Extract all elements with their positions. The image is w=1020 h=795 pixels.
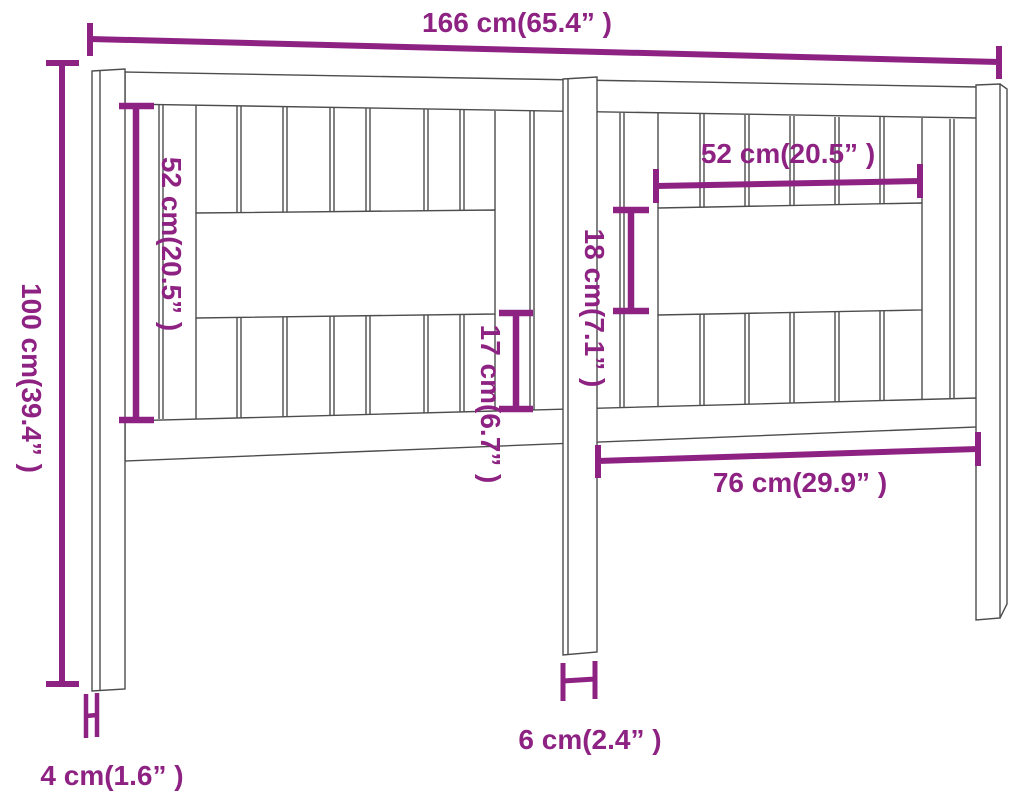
dimension-middle-post-width-label: 6 cm(2.4” )	[518, 724, 661, 755]
dimension-total-height: 100 cm(39.4” )	[16, 63, 79, 684]
headboard-dimension-diagram: 166 cm(65.4” ) 100 cm(39.4” ) 52 cm(20.5…	[0, 0, 1020, 795]
dimension-post-spacing: 76 cm(29.9” )	[598, 432, 978, 498]
dimension-opening-height: 18 cm(7.1” )	[579, 210, 649, 387]
dimension-middle-post-width: 6 cm(2.4” )	[518, 661, 661, 755]
right-post	[976, 84, 1007, 620]
right-opening	[658, 203, 922, 315]
dimension-total-height-label: 100 cm(39.4” )	[16, 283, 47, 473]
left-opening	[196, 210, 495, 318]
dimension-post-spacing-label: 76 cm(29.9” )	[713, 467, 887, 498]
dimension-slat-panel-height: 52 cm(20.5” )	[119, 106, 187, 420]
dimension-slat-panel-height-label: 52 cm(20.5” )	[156, 157, 187, 331]
dimension-total-width-label: 166 cm(65.4” )	[422, 7, 612, 38]
dimension-post-thickness: 4 cm(1.6” )	[40, 693, 183, 791]
dimension-lower-slat-height: 17 cm(6.7” )	[475, 313, 533, 483]
dimension-lower-slat-height-label: 17 cm(6.7” )	[475, 325, 506, 484]
dimension-post-thickness-label: 4 cm(1.6” )	[40, 760, 183, 791]
left-post	[92, 69, 125, 691]
dimension-opening-height-label: 18 cm(7.1” )	[579, 229, 610, 388]
dimension-total-width: 166 cm(65.4” )	[90, 7, 999, 79]
top-rail	[125, 72, 977, 118]
diagram-canvas: 166 cm(65.4” ) 100 cm(39.4” ) 52 cm(20.5…	[0, 0, 1020, 795]
dimension-opening-width-label: 52 cm(20.5” )	[701, 138, 875, 169]
